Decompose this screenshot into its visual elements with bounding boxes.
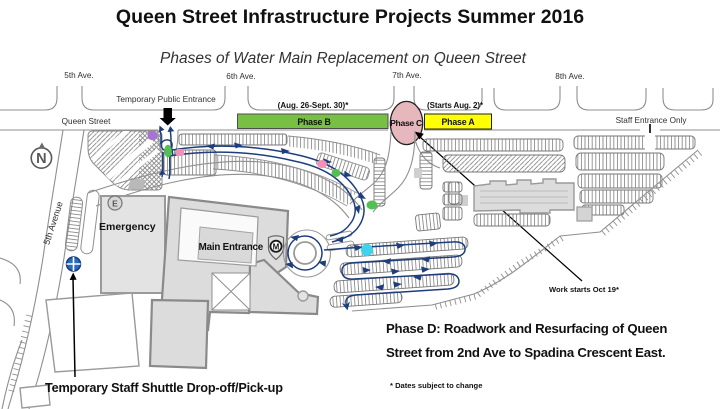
svg-text:8th Ave.: 8th Ave. [555,72,584,81]
svg-text:Temporary Staff Shuttle Drop-o: Temporary Staff Shuttle Drop-off/Pick-up [45,381,283,395]
svg-text:Temporary Public Entrance: Temporary Public Entrance [116,94,216,104]
svg-text:Queen Street: Queen Street [62,117,111,126]
svg-text:Phases of Water Main Replaceme: Phases of Water Main Replacement on Quee… [160,50,527,67]
svg-text:Phase B: Phase B [297,117,330,127]
svg-text:(Starts Aug. 2)*: (Starts Aug. 2)* [427,101,484,110]
svg-text:Emergency: Emergency [99,221,156,233]
svg-text:Work starts Oct 19*: Work starts Oct 19* [549,285,619,294]
svg-text:(Aug. 26-Sept. 30)*: (Aug. 26-Sept. 30)* [278,101,350,110]
svg-text:E: E [112,199,118,209]
svg-text:Main Entrance: Main Entrance [199,242,264,253]
svg-text:7th Ave.: 7th Ave. [392,71,421,80]
svg-text:M: M [273,243,280,252]
svg-text:Street from 2nd Ave to Spadina: Street from 2nd Ave to Spadina Crescent … [386,345,665,360]
svg-text:6th Ave.: 6th Ave. [226,72,255,81]
svg-text:* Dates subject to change: * Dates subject to change [390,381,482,390]
svg-text:Staff Entrance Only: Staff Entrance Only [616,116,688,125]
svg-text:Phase D: Roadwork and Resurfac: Phase D: Roadwork and Resurfacing of Que… [386,321,667,336]
svg-text:Phase C: Phase C [390,118,422,128]
svg-text:N: N [36,151,46,167]
svg-text:5th Ave.: 5th Ave. [64,71,93,80]
svg-text:Phase A: Phase A [442,117,476,127]
svg-text:Queen Street Infrastructure Pr: Queen Street Infrastructure Projects Sum… [116,6,584,28]
